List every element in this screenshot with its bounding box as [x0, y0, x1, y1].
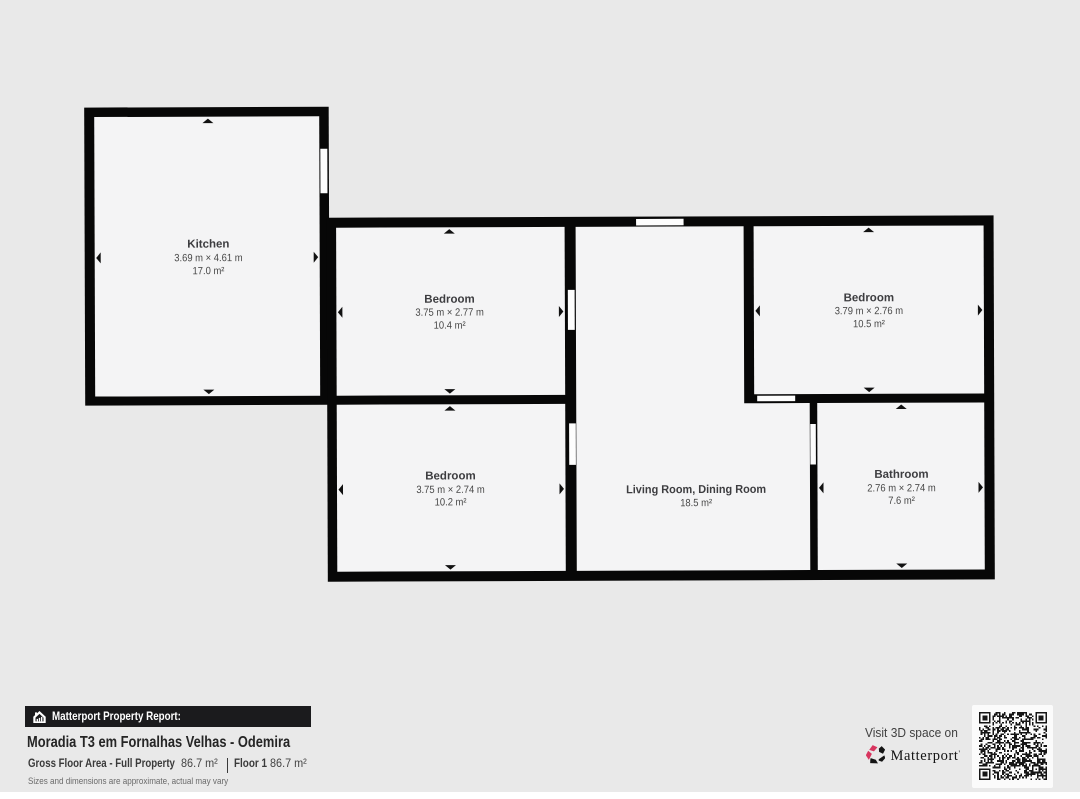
- svg-text:3.69 m × 4.61 m: 3.69 m × 4.61 m: [174, 253, 242, 265]
- svg-text:3.75 m × 2.74 m: 3.75 m × 2.74 m: [416, 484, 484, 496]
- svg-text:10.5 m²: 10.5 m²: [853, 319, 886, 331]
- svg-text:Living Room, Dining Room: Living Room, Dining Room: [626, 484, 766, 497]
- svg-text:2.76 m × 2.74 m: 2.76 m × 2.74 m: [867, 483, 935, 495]
- svg-text:Bathroom: Bathroom: [874, 469, 928, 481]
- svg-text:17.0 m²: 17.0 m²: [192, 266, 225, 278]
- svg-text:3.79 m × 2.76 m: 3.79 m × 2.76 m: [835, 306, 903, 318]
- svg-text:18.5 m²: 18.5 m²: [680, 498, 713, 510]
- svg-text:7.6 m²: 7.6 m²: [888, 495, 915, 507]
- svg-text:Bedroom: Bedroom: [425, 470, 476, 482]
- svg-text:Kitchen: Kitchen: [187, 238, 229, 250]
- svg-text:10.2 m²: 10.2 m²: [435, 497, 468, 509]
- svg-text:Bedroom: Bedroom: [424, 294, 475, 306]
- svg-text:10.4 m²: 10.4 m²: [434, 320, 467, 332]
- svg-text:Bedroom: Bedroom: [844, 292, 895, 304]
- svg-text:3.75 m × 2.77 m: 3.75 m × 2.77 m: [415, 307, 483, 319]
